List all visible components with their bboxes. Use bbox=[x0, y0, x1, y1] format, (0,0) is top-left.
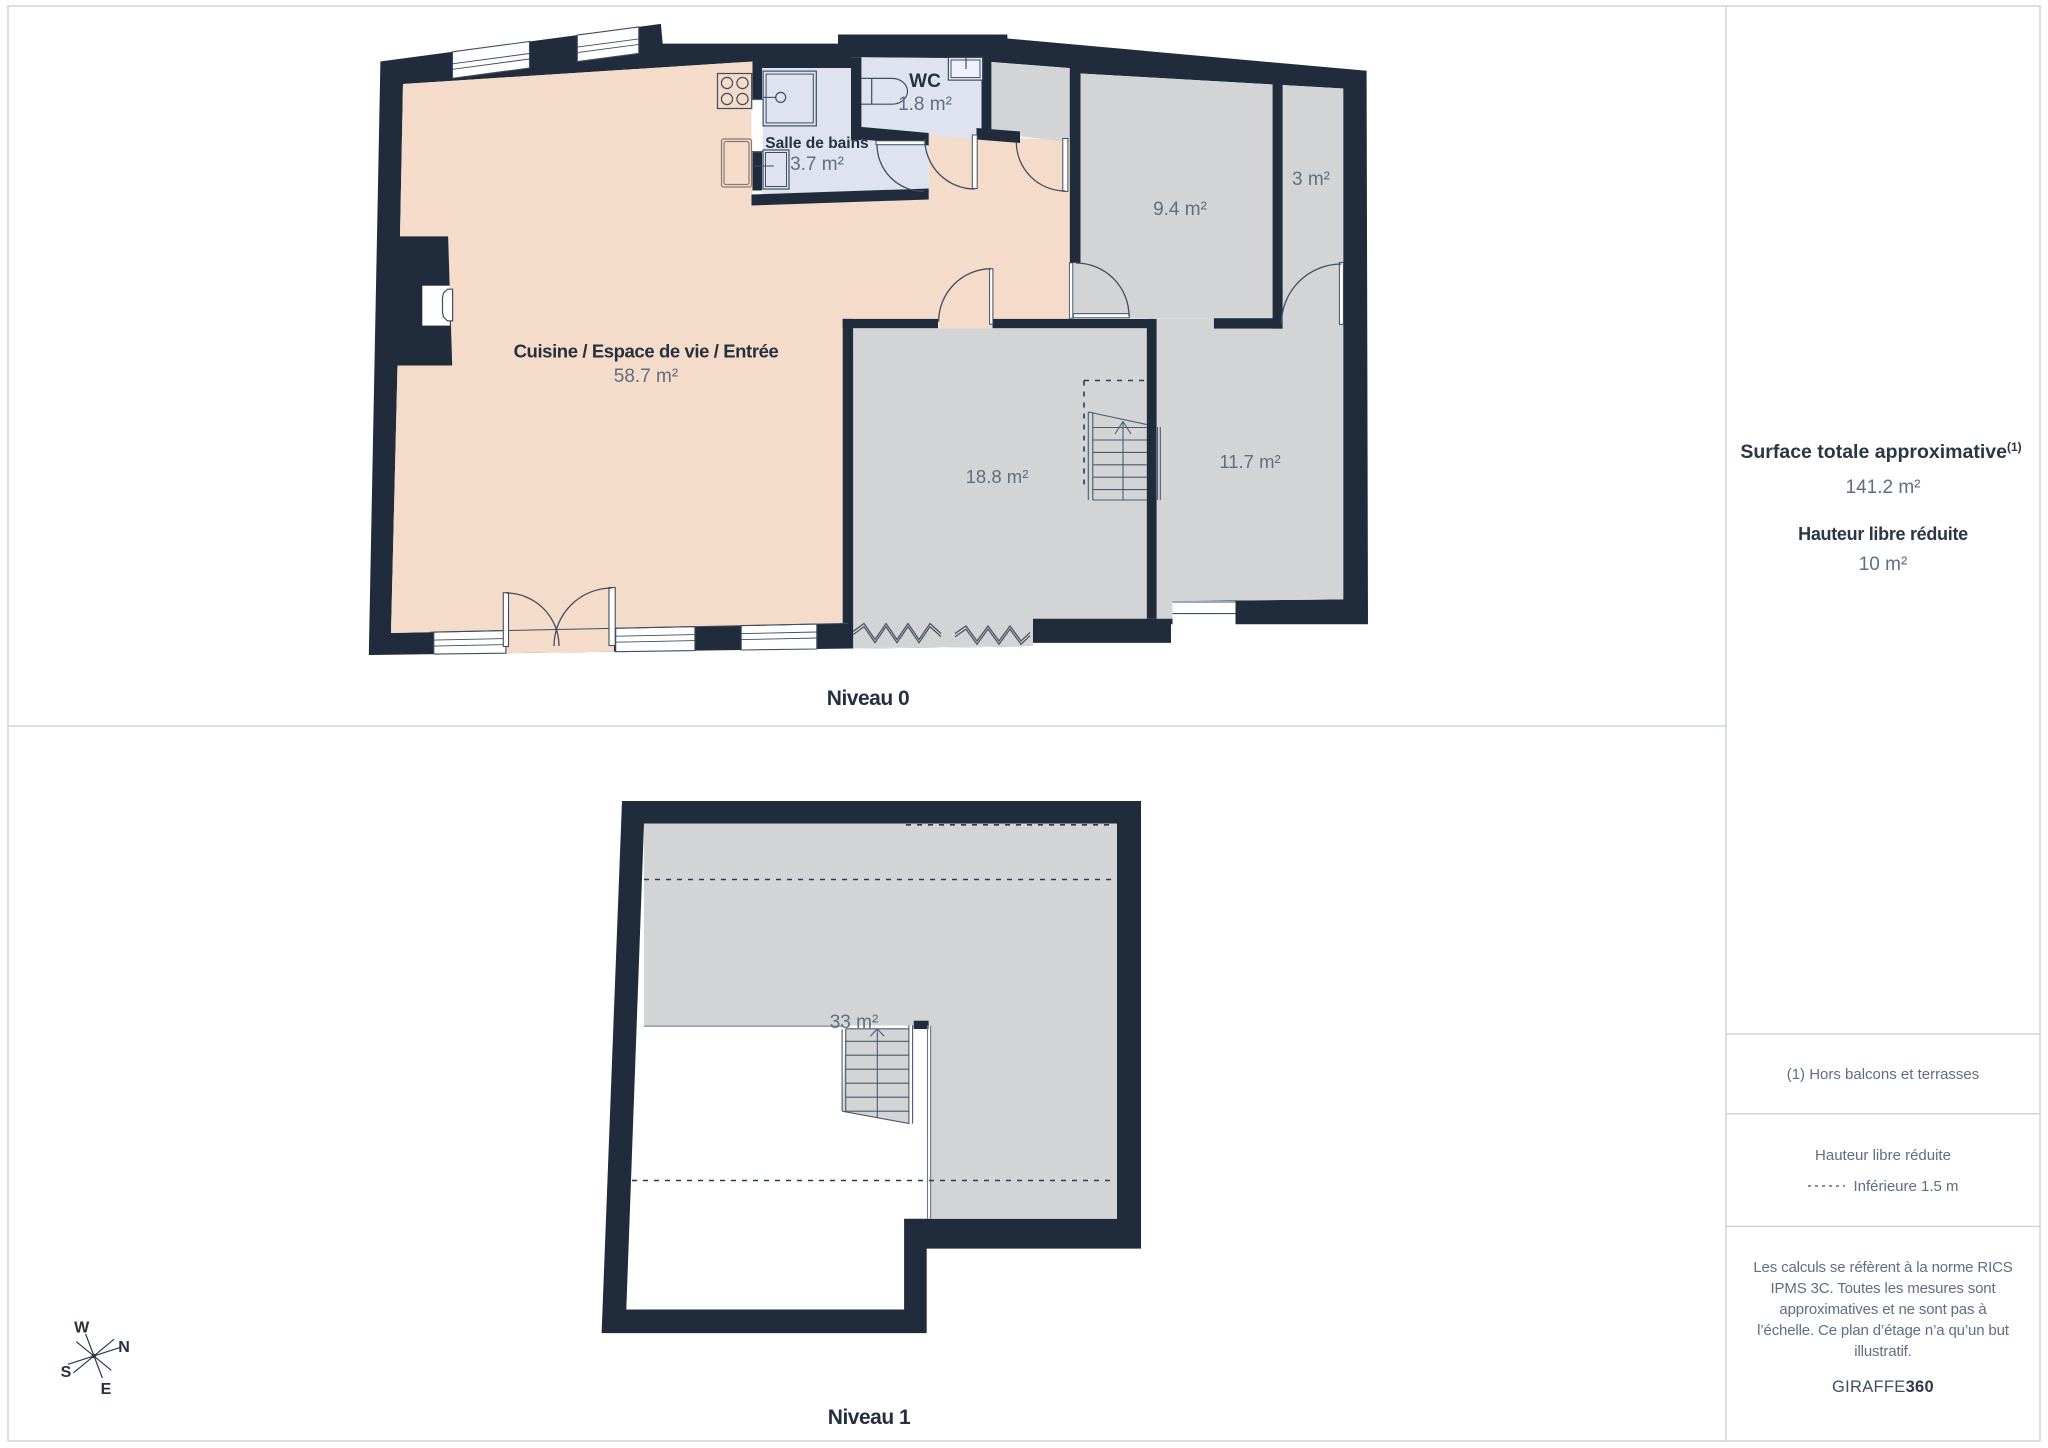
svg-text:Cuisine / Espace de vie / Entr: Cuisine / Espace de vie / Entrée bbox=[514, 341, 779, 362]
svg-text:S: S bbox=[61, 1364, 72, 1381]
svg-text:approximatives et ne sont pas: approximatives et ne sont pas à bbox=[1779, 1301, 1987, 1318]
svg-text:Inférieure 1.5 m: Inférieure 1.5 m bbox=[1853, 1178, 1958, 1195]
svg-text:141.2 m²: 141.2 m² bbox=[1846, 477, 1921, 498]
svg-text:Surface totale approximative(1: Surface totale approximative(1) bbox=[1740, 440, 2021, 463]
svg-text:illustratif.: illustratif. bbox=[1854, 1343, 1911, 1360]
svg-text:10 m²: 10 m² bbox=[1859, 554, 1908, 575]
svg-text:58.7 m²: 58.7 m² bbox=[614, 366, 678, 387]
svg-text:3 m²: 3 m² bbox=[1292, 169, 1330, 190]
svg-text:3.7 m²: 3.7 m² bbox=[790, 154, 844, 175]
svg-text:9.4 m²: 9.4 m² bbox=[1153, 199, 1207, 220]
svg-text:Salle de bains: Salle de bains bbox=[765, 135, 868, 152]
svg-text:Les calculs se réfèrent à la n: Les calculs se réfèrent à la norme RICS bbox=[1753, 1259, 2012, 1276]
svg-text:Hauteur libre réduite: Hauteur libre réduite bbox=[1798, 524, 1968, 544]
svg-text:11.7 m²: 11.7 m² bbox=[1219, 451, 1280, 472]
svg-text:(1) Hors balcons et terrasses: (1) Hors balcons et terrasses bbox=[1787, 1066, 1980, 1083]
svg-text:l’échelle. Ce plan d’étage n’a: l’échelle. Ce plan d’étage n’a qu’un but bbox=[1757, 1322, 2010, 1339]
svg-text:1.8 m²: 1.8 m² bbox=[898, 94, 952, 115]
svg-text:Niveau 0: Niveau 0 bbox=[827, 687, 909, 710]
svg-text:Hauteur libre réduite: Hauteur libre réduite bbox=[1815, 1147, 1951, 1164]
svg-text:WC: WC bbox=[909, 71, 941, 92]
svg-text:N: N bbox=[118, 1339, 130, 1356]
svg-text:Niveau 1: Niveau 1 bbox=[828, 1406, 911, 1429]
svg-text:GIRAFFE360: GIRAFFE360 bbox=[1832, 1378, 1934, 1396]
svg-text:18.8 m²: 18.8 m² bbox=[966, 466, 1029, 487]
svg-text:E: E bbox=[101, 1381, 112, 1398]
svg-text:IPMS 3C. Toutes les mesures so: IPMS 3C. Toutes les mesures sont bbox=[1770, 1280, 1996, 1297]
svg-text:W: W bbox=[74, 1320, 90, 1337]
svg-text:33 m²: 33 m² bbox=[830, 1012, 879, 1033]
